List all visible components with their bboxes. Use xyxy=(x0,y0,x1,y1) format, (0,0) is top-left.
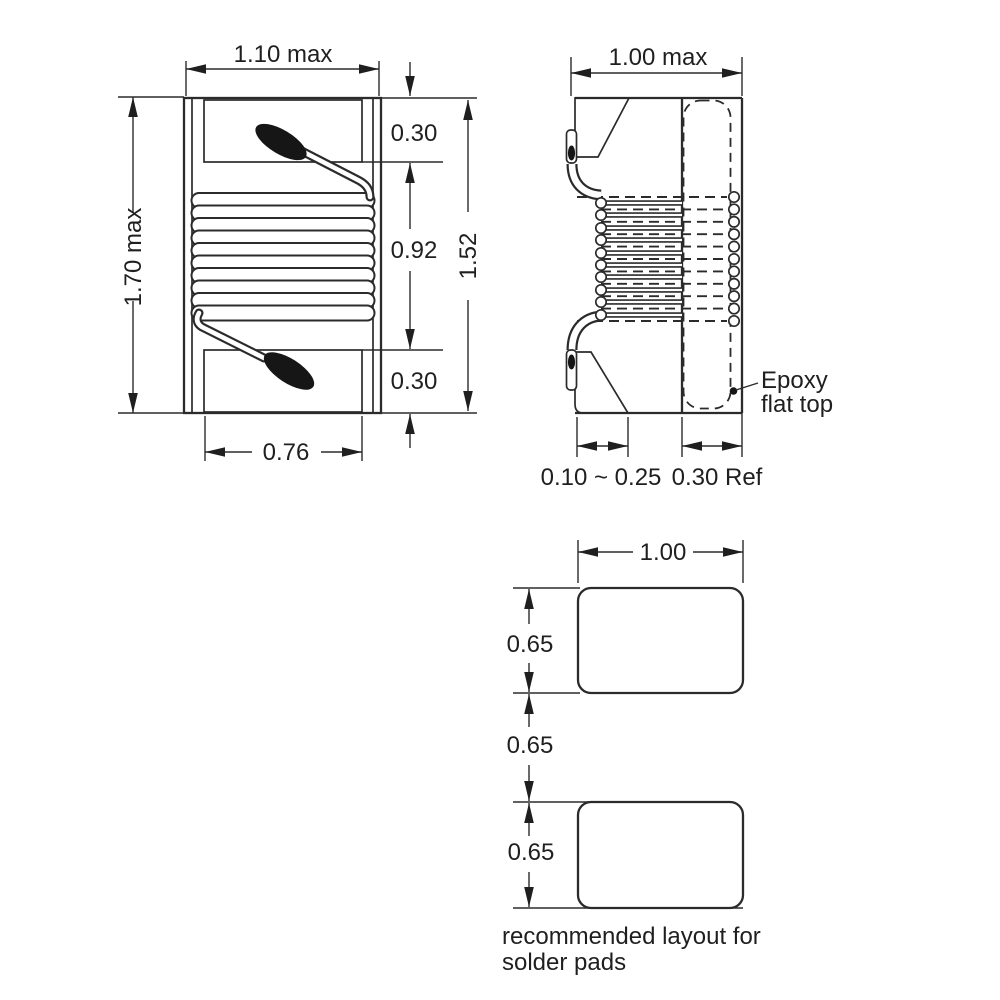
side-top-terminal-hatch xyxy=(575,98,629,157)
dim-wire-terminal: 0.10 ~ 0.25 xyxy=(541,417,662,491)
top-wire-end xyxy=(568,146,575,161)
pad-gap-label: 0.65 xyxy=(507,732,554,759)
dim-pad-gap: 0.65 xyxy=(507,694,554,801)
epoxy-outline xyxy=(684,101,731,409)
dim-flange-ref: 0.30 Ref xyxy=(672,413,763,491)
dim-pad2-height: 0.65 xyxy=(508,803,555,907)
dim-side-width: 1.00 max xyxy=(571,44,742,96)
flange-ref-label: 0.30 Ref xyxy=(672,464,763,491)
pad1-height-label: 0.65 xyxy=(507,631,554,658)
dim-pad1-height: 0.65 xyxy=(507,589,554,692)
dim-top-terminal: 0.30 xyxy=(391,62,438,147)
epoxy-note-line2: flat top xyxy=(761,391,833,418)
epoxy-note: Epoxy flat top xyxy=(730,367,833,418)
epoxy-leader-line xyxy=(736,383,758,390)
solder-pad-bottom xyxy=(578,802,743,908)
dim-body-length: 1.52 xyxy=(455,100,482,411)
front-view: 1.10 max 1.70 max 0.30 0.92 xyxy=(118,41,482,466)
side-bottom-terminal-hatch xyxy=(575,352,628,413)
solder-pad-top xyxy=(578,588,743,693)
wire-terminal-label: 0.10 ~ 0.25 xyxy=(541,464,662,491)
terminal-width-label: 0.76 xyxy=(263,439,310,466)
top-wire-bend xyxy=(572,164,601,195)
dim-winding: 0.92 xyxy=(391,163,438,349)
bottom-wire-bend xyxy=(572,316,602,350)
caption-line2: solder pads xyxy=(502,949,626,976)
winding-right-loops xyxy=(729,192,739,326)
pad2-height-label: 0.65 xyxy=(508,839,555,866)
front-width-label: 1.10 max xyxy=(234,41,333,68)
inductor-dimension-drawing: 1.10 max 1.70 max 0.30 0.92 xyxy=(0,0,1000,1000)
winding-label: 0.92 xyxy=(391,237,438,264)
front-height-label: 1.70 max xyxy=(120,208,147,307)
bottom-wire-end xyxy=(568,355,575,370)
top-terminal-label: 0.30 xyxy=(391,120,438,147)
drawing-svg: 1.10 max 1.70 max 0.30 0.92 xyxy=(0,0,1000,1000)
dim-front-width: 1.10 max xyxy=(186,41,379,96)
pad-layout-view: 1.00 0.65 0.65 0.65 xyxy=(502,539,761,976)
epoxy-leader-dot xyxy=(730,387,738,395)
bottom-terminal-label: 0.30 xyxy=(391,368,438,395)
side-width-label: 1.00 max xyxy=(609,44,708,71)
side-view: 1.00 max 0.10 ~ 0.25 0.30 Ref Epoxy flat… xyxy=(541,44,833,491)
dim-front-height: 1.70 max xyxy=(118,97,184,413)
epoxy-note-line1: Epoxy xyxy=(761,367,828,394)
dim-bottom-terminal: 0.30 xyxy=(391,368,438,448)
dim-terminal-width: 0.76 xyxy=(205,416,362,466)
caption-line1: recommended layout for xyxy=(502,923,761,950)
coil-winding xyxy=(192,193,375,321)
dim-pad-width: 1.00 xyxy=(578,539,743,583)
body-length-label: 1.52 xyxy=(455,233,482,280)
pad-width-label: 1.00 xyxy=(640,539,687,566)
pad-layout-caption: recommended layout for solder pads xyxy=(502,923,761,976)
